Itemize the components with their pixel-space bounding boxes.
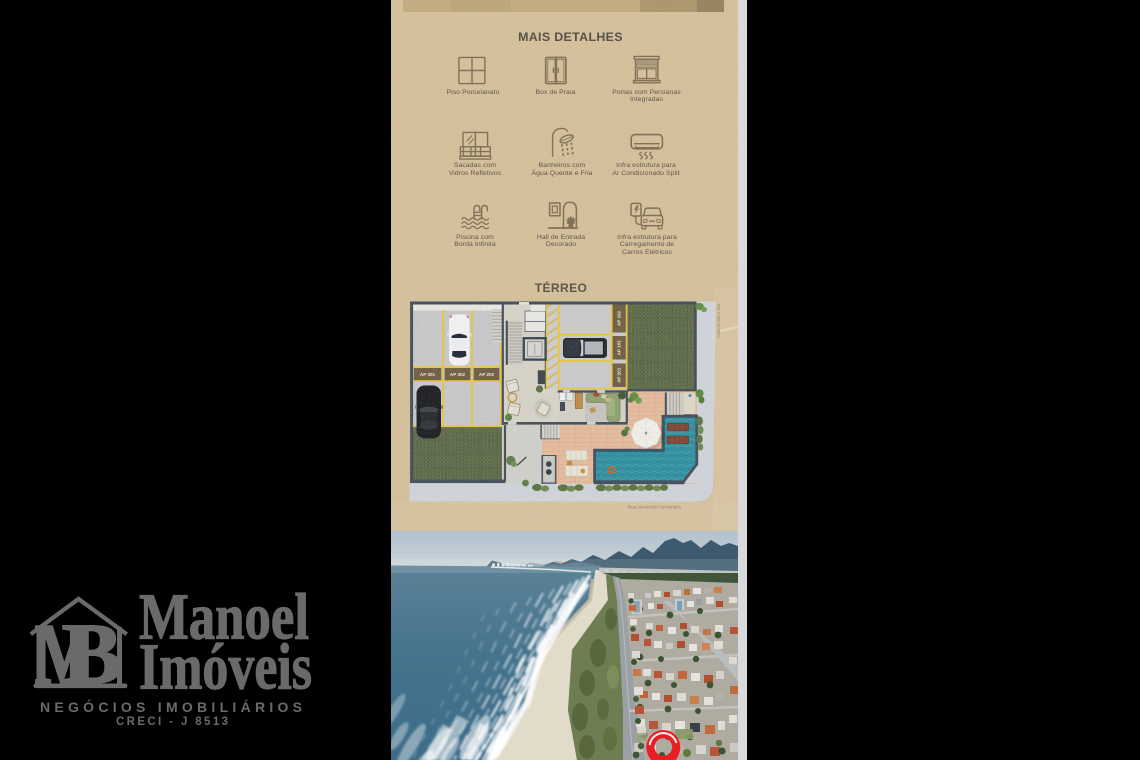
svg-text:Imóveis: Imóveis xyxy=(139,631,312,704)
svg-text:CRECI - J 8513: CRECI - J 8513 xyxy=(116,716,228,728)
